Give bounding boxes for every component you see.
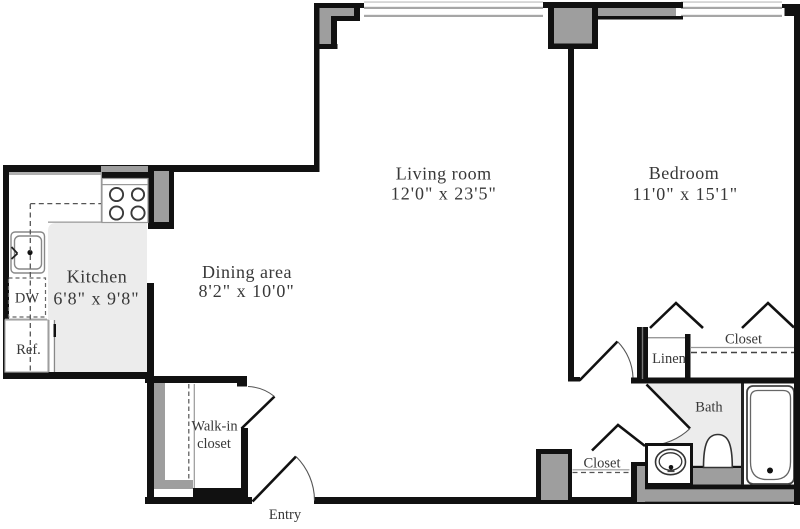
svg-text:Closet: Closet [583,456,620,472]
svg-text:Ref.: Ref. [16,342,41,358]
svg-text:Living room: Living room [396,164,492,184]
svg-text:11'0" x 15'1": 11'0" x 15'1" [633,184,739,204]
svg-text:Linen: Linen [652,351,687,367]
svg-text:Bedroom: Bedroom [649,163,720,183]
svg-text:Walk-in: Walk-in [191,419,238,435]
svg-text:Entry: Entry [269,507,302,523]
svg-text:Kitchen: Kitchen [67,267,127,287]
svg-text:8'2" x 10'0": 8'2" x 10'0" [199,281,295,301]
svg-text:Closet: Closet [725,332,762,348]
svg-text:DW: DW [15,291,39,307]
svg-text:12'0" x 23'5": 12'0" x 23'5" [391,184,497,204]
svg-text:closet: closet [197,436,231,452]
svg-text:6'8" x 9'8": 6'8" x 9'8" [53,289,139,309]
svg-text:Bath: Bath [695,400,723,416]
svg-text:Dining area: Dining area [202,262,292,282]
